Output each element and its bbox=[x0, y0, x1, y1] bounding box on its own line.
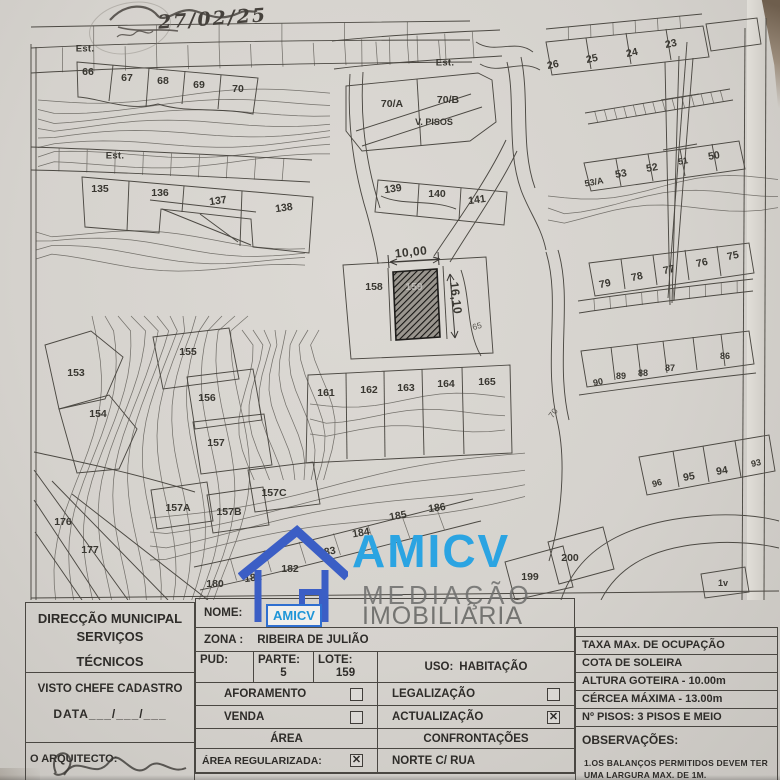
actualizacao-cell: ACTUALIZAÇÃO bbox=[378, 706, 574, 728]
spec-row: ALTURA GOTEIRA - 10.00m bbox=[576, 673, 777, 691]
aforamento-cell: AFORAMENTO bbox=[196, 683, 378, 705]
signature-arquitecto bbox=[34, 743, 194, 780]
form-middle-column: NOME: ZONA : RIBEIRA DE JULIÃO PUD: PART… bbox=[195, 598, 575, 774]
zona-label: ZONA : bbox=[204, 634, 243, 646]
legalizacao-label: LEGALIZAÇÃO bbox=[392, 688, 475, 700]
venda-cell: VENDA bbox=[196, 706, 378, 728]
spec-row: Nº PISOS: 3 PISOS E MEIO bbox=[576, 709, 777, 727]
uso-label: USO: bbox=[425, 661, 454, 673]
municipal-services-title: DIRECÇÃO MUNICIPAL SERVIÇOS TÉCNICOS bbox=[26, 603, 194, 673]
parte-cell: PARTE: 5 bbox=[254, 652, 314, 682]
lote-value: 159 bbox=[318, 667, 373, 679]
venda-row: VENDA ACTUALIZAÇÃO bbox=[196, 706, 574, 729]
legalizacao-checkbox bbox=[547, 688, 560, 701]
headers-row: ÁREA CONFRONTAÇÕES bbox=[196, 729, 574, 749]
confrontacoes-header: CONFRONTAÇÕES bbox=[378, 729, 574, 748]
spec-row: TAXA MAx. DE OCUPAÇÃO bbox=[576, 637, 777, 655]
arquitecto-section: O ARQUITECTO: bbox=[26, 743, 194, 780]
aforamento-row: AFORAMENTO LEGALIZAÇÃO bbox=[196, 683, 574, 706]
norte-cell: NORTE C/ RUA bbox=[378, 755, 574, 767]
lote-cell: LOTE: 159 bbox=[314, 652, 378, 682]
parte-label: PARTE: bbox=[258, 654, 309, 666]
nome-label: NOME: bbox=[204, 607, 242, 619]
right-column-gap bbox=[576, 628, 777, 637]
parte-value: 5 bbox=[258, 667, 309, 679]
area-regularizada-checkbox bbox=[350, 754, 363, 767]
title-line2: SERVIÇOS bbox=[26, 628, 194, 646]
actualizacao-label: ACTUALIZAÇÃO bbox=[392, 711, 483, 723]
area-regularizada-label: ÁREA REGULARIZADA: bbox=[202, 755, 322, 767]
building-specs: TAXA MAx. DE OCUPAÇÃOCOTA DE SOLEIRAALTU… bbox=[576, 637, 777, 727]
regularizada-row: ÁREA REGULARIZADA: NORTE C/ RUA bbox=[196, 749, 574, 773]
uso-cell: USO: HABITAÇÃO bbox=[378, 652, 574, 682]
pud-label: PUD: bbox=[200, 654, 249, 666]
nome-row: NOME: bbox=[196, 599, 574, 628]
area-header: ÁREA bbox=[196, 729, 378, 748]
area-regularizada-cell: ÁREA REGULARIZADA: bbox=[196, 749, 378, 772]
uso-value: HABITAÇÃO bbox=[459, 661, 527, 673]
lote-label: LOTE: bbox=[318, 654, 373, 666]
cadastral-form: DIRECÇÃO MUNICIPAL SERVIÇOS TÉCNICOS VIS… bbox=[25, 597, 778, 780]
zona-value: RIBEIRA DE JULIÃO bbox=[257, 634, 368, 646]
visto-section: VISTO CHEFE CADASTRO DATA___/___/___ bbox=[26, 683, 194, 743]
zona-row: ZONA : RIBEIRA DE JULIÃO bbox=[196, 628, 574, 652]
aforamento-label: AFORAMENTO bbox=[224, 688, 306, 700]
title-line1: DIRECÇÃO MUNICIPAL bbox=[26, 610, 194, 628]
spec-row: CÉRCEA MÁXIMA - 13.00m bbox=[576, 691, 777, 709]
observacoes-note: 1.OS BALANÇOS PERMITIDOS DEVEM TER UMA L… bbox=[576, 747, 777, 780]
form-right-column: TAXA MAx. DE OCUPAÇÃOCOTA DE SOLEIRAALTU… bbox=[575, 627, 778, 780]
title-line3: TÉCNICOS bbox=[26, 653, 194, 671]
data-label: DATA___/___/___ bbox=[26, 707, 194, 721]
scanned-cadastral-document: Est.6667686970Est.70/A70/BV. PISOS262524… bbox=[0, 0, 780, 780]
pud-row: PUD: PARTE: 5 LOTE: 159 USO: HABITAÇÃO bbox=[196, 652, 574, 683]
venda-checkbox bbox=[350, 711, 363, 724]
observacoes-label: OBSERVAÇÕES: bbox=[576, 727, 777, 747]
pud-cell: PUD: bbox=[196, 652, 254, 682]
form-left-column: DIRECÇÃO MUNICIPAL SERVIÇOS TÉCNICOS VIS… bbox=[25, 602, 195, 780]
visto-label: VISTO CHEFE CADASTRO bbox=[26, 683, 194, 695]
spec-row: COTA DE SOLEIRA bbox=[576, 655, 777, 673]
venda-label: VENDA bbox=[224, 711, 264, 723]
aforamento-checkbox bbox=[350, 688, 363, 701]
plot-159-hatched bbox=[393, 269, 440, 340]
legalizacao-cell: LEGALIZAÇÃO bbox=[378, 683, 574, 705]
actualizacao-checkbox bbox=[547, 711, 560, 724]
cadastral-map bbox=[0, 0, 780, 600]
